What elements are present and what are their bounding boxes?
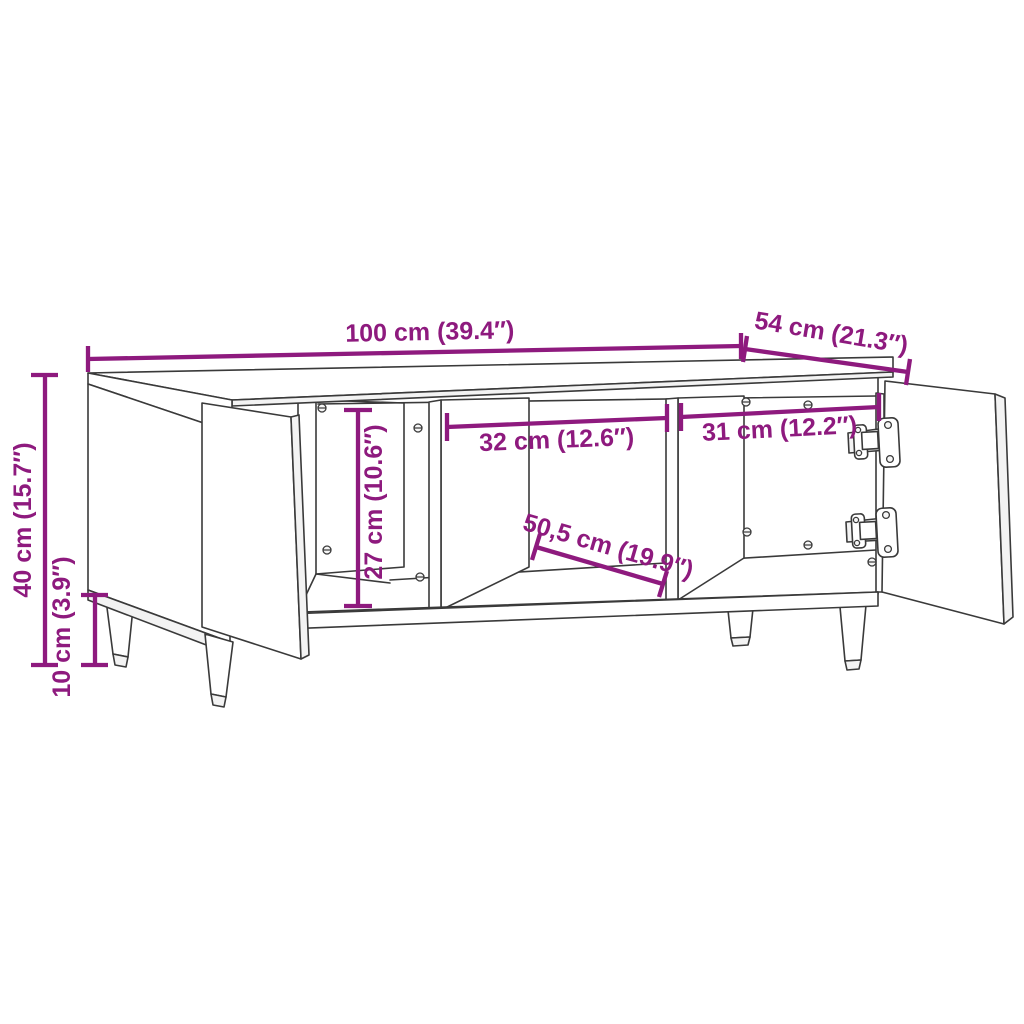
screw-icon	[414, 424, 422, 432]
screw-icon	[742, 398, 750, 406]
screw-icon	[318, 404, 326, 412]
dim-leg-height-label: 10 cm (3.9″)	[48, 556, 76, 697]
screw-icon	[323, 546, 331, 554]
screw-icon	[416, 573, 424, 581]
interior-back-wall	[302, 371, 878, 614]
right-door-open	[882, 381, 1013, 624]
screw-icon	[804, 401, 812, 409]
dim-width-label: 100 cm (39.4″)	[345, 316, 515, 348]
dim-height-label: 40 cm (15.7″)	[9, 442, 37, 597]
cabinet-dimension-drawing: 100 cm (39.4″) 54 cm (21.3″) 40 cm (15.7…	[0, 0, 1024, 1024]
screw-icon	[804, 541, 812, 549]
dim-inner-height-label: 27 cm (10.6″)	[360, 424, 388, 579]
screw-icon	[868, 558, 876, 566]
dimension-diagram: 100 cm (39.4″) 54 cm (21.3″) 40 cm (15.7…	[0, 0, 1024, 1024]
left-door-open	[202, 403, 309, 659]
screw-icon	[743, 528, 751, 536]
